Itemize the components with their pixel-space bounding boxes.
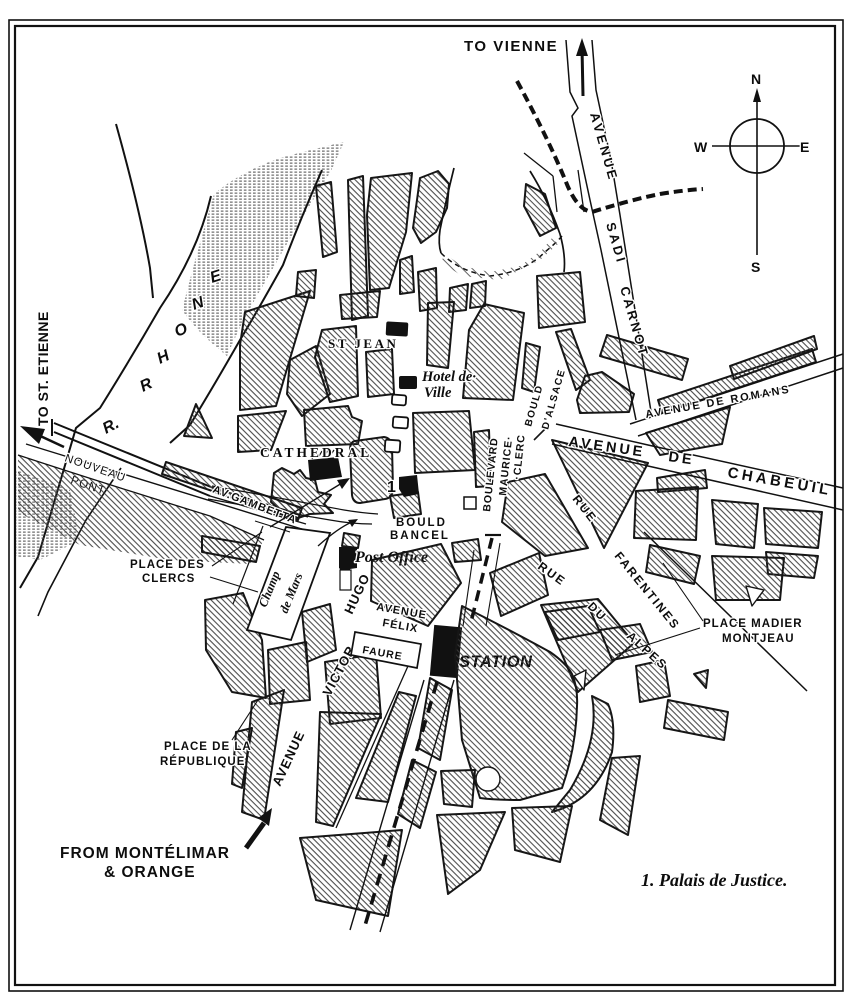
svg-text:ST JEAN: ST JEAN xyxy=(328,336,398,351)
svg-text:FROM MONTÉLIMAR: FROM MONTÉLIMAR xyxy=(60,845,230,862)
svg-text:1. Palais de Justice.: 1. Palais de Justice. xyxy=(641,870,788,890)
svg-text:MONTJEAU: MONTJEAU xyxy=(722,633,795,645)
svg-text:S: S xyxy=(751,259,760,275)
svg-text:TO VIENNE: TO VIENNE xyxy=(464,38,558,55)
svg-text:BOULD: BOULD xyxy=(396,517,447,529)
svg-text:& ORANGE: & ORANGE xyxy=(104,864,196,881)
svg-text:Ville: Ville xyxy=(424,385,452,401)
svg-text:CATHEDRAL: CATHEDRAL xyxy=(260,445,372,460)
svg-text:W: W xyxy=(694,139,708,155)
svg-text:E: E xyxy=(800,139,809,155)
svg-text:CLERCS: CLERCS xyxy=(142,573,195,585)
svg-text:PLACE DES: PLACE DES xyxy=(130,559,205,571)
svg-text:N: N xyxy=(751,71,761,87)
svg-text:PLACE DE LA: PLACE DE LA xyxy=(164,741,252,753)
svg-text:1: 1 xyxy=(387,479,396,496)
svg-text:BANCEL: BANCEL xyxy=(390,530,450,542)
svg-text:PLACE MADIER: PLACE MADIER xyxy=(703,618,803,630)
svg-text:Hotel de·: Hotel de· xyxy=(421,369,476,385)
svg-text:RÉPUBLIQUE: RÉPUBLIQUE xyxy=(160,755,245,768)
svg-text:TO ST. ETIENNE: TO ST. ETIENNE xyxy=(35,311,51,426)
